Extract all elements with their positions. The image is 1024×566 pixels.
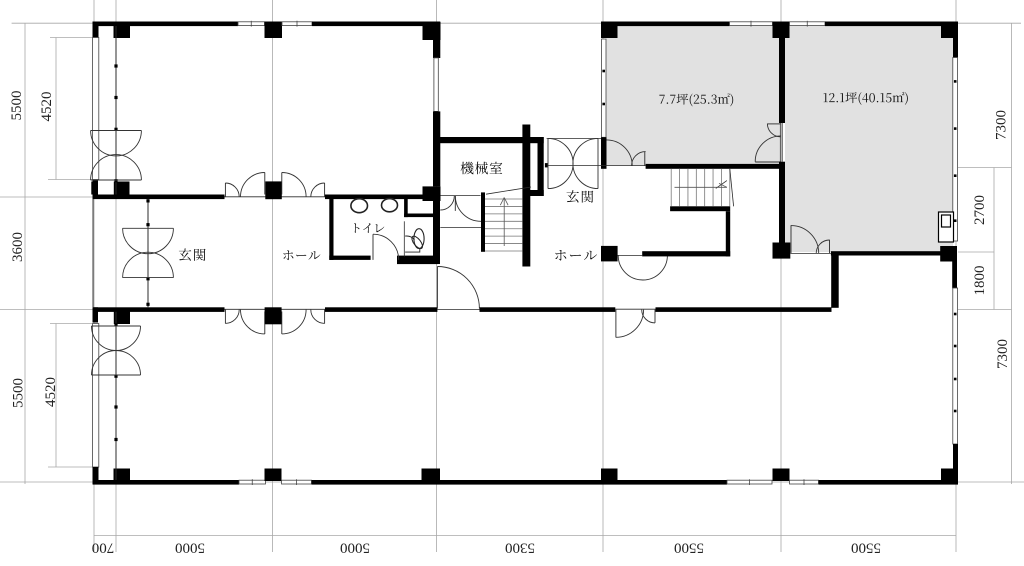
svg-text:5500: 5500 xyxy=(851,539,881,555)
svg-text:4520: 4520 xyxy=(39,92,55,122)
svg-text:4520: 4520 xyxy=(43,377,59,407)
svg-text:7300: 7300 xyxy=(994,110,1010,140)
svg-text:700: 700 xyxy=(92,539,115,555)
svg-text:5000: 5000 xyxy=(175,539,205,555)
svg-text:5500: 5500 xyxy=(674,539,704,555)
svg-text:5000: 5000 xyxy=(340,539,370,555)
svg-text:2700: 2700 xyxy=(972,195,988,225)
svg-text:5300: 5300 xyxy=(505,539,535,555)
svg-text:1800: 1800 xyxy=(972,266,988,296)
svg-text:5500: 5500 xyxy=(9,91,25,121)
svg-text:7300: 7300 xyxy=(995,339,1011,369)
svg-text:3600: 3600 xyxy=(10,232,26,262)
svg-text:5500: 5500 xyxy=(11,378,27,408)
